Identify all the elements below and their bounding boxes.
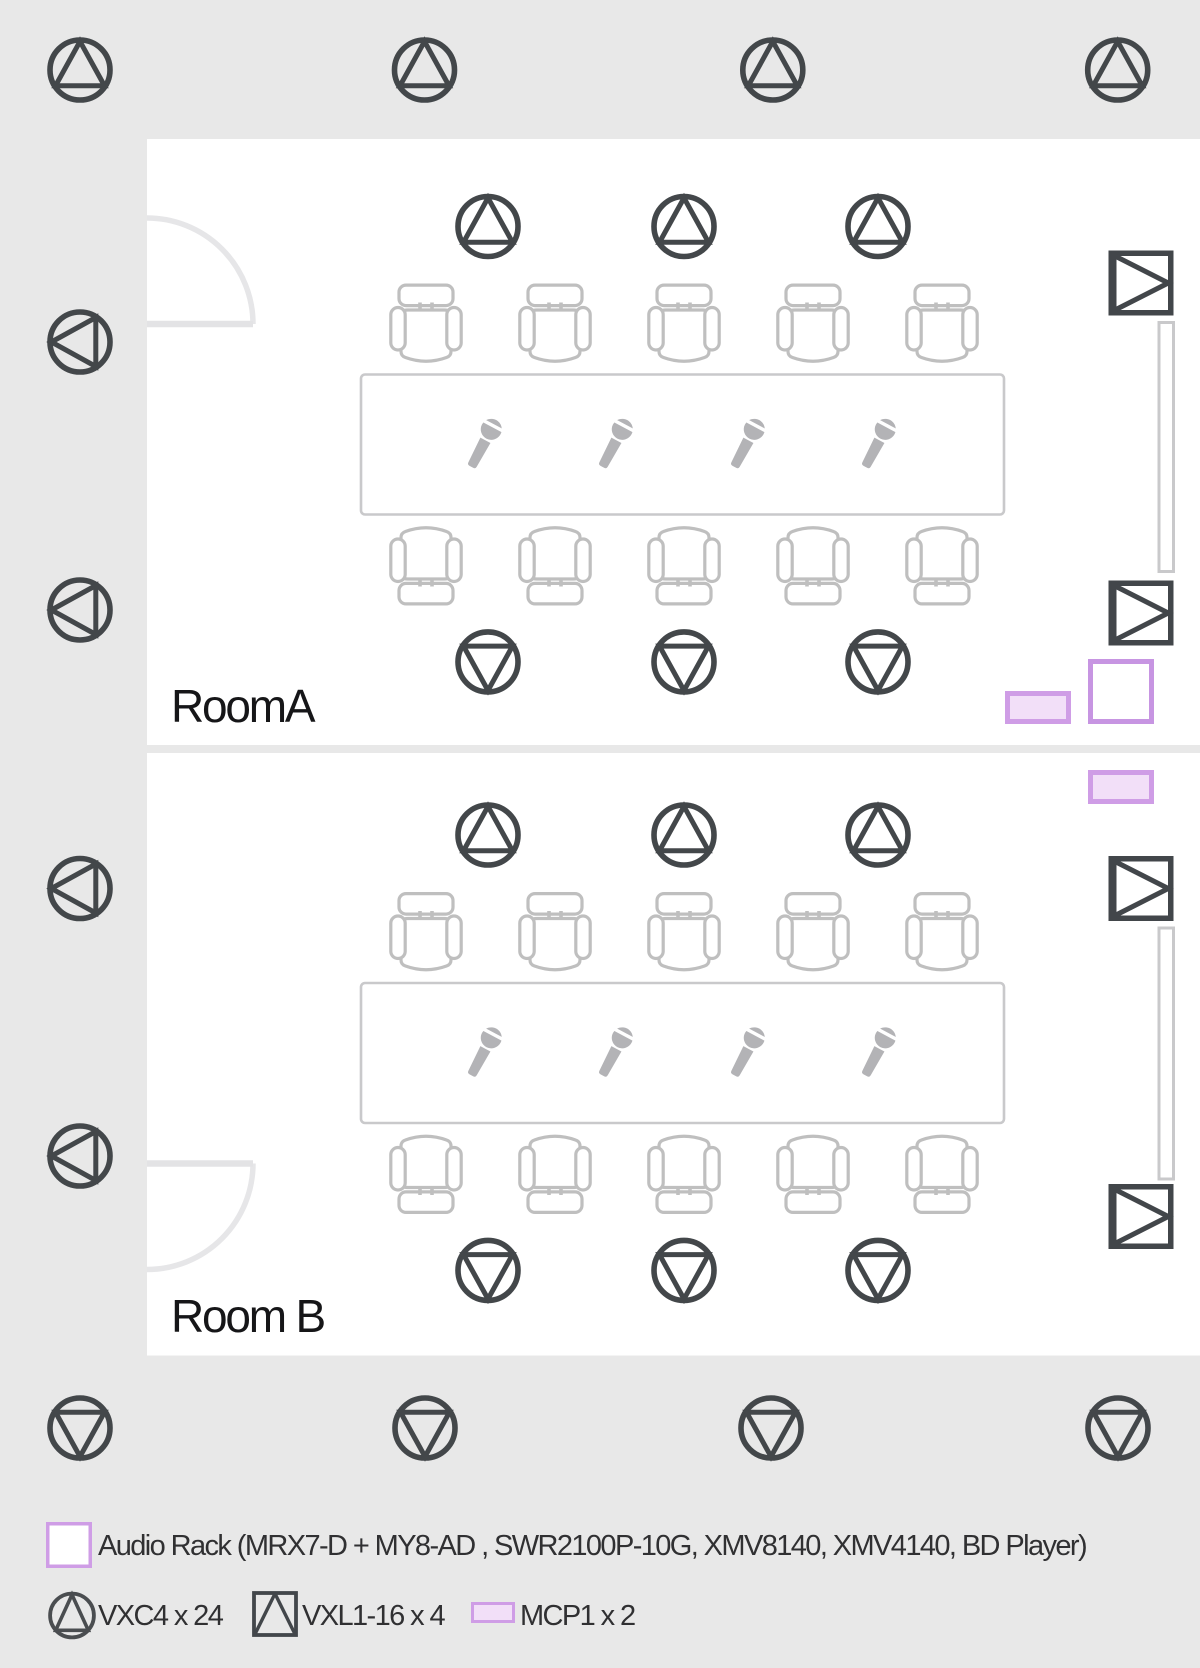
svg-text:VXC4 x 24: VXC4 x 24 [98, 1600, 224, 1632]
svg-text:RoomA: RoomA [171, 680, 316, 732]
svg-text:Room B: Room B [171, 1290, 324, 1342]
svg-text:MCP1 x 2: MCP1 x 2 [520, 1600, 635, 1632]
svg-text:VXL1-16 x 4: VXL1-16 x 4 [302, 1600, 445, 1632]
svg-text:Audio Rack (MRX7-D + MY8-AD ,: Audio Rack (MRX7-D + MY8-AD , SWR2100P-1… [98, 1530, 1086, 1562]
